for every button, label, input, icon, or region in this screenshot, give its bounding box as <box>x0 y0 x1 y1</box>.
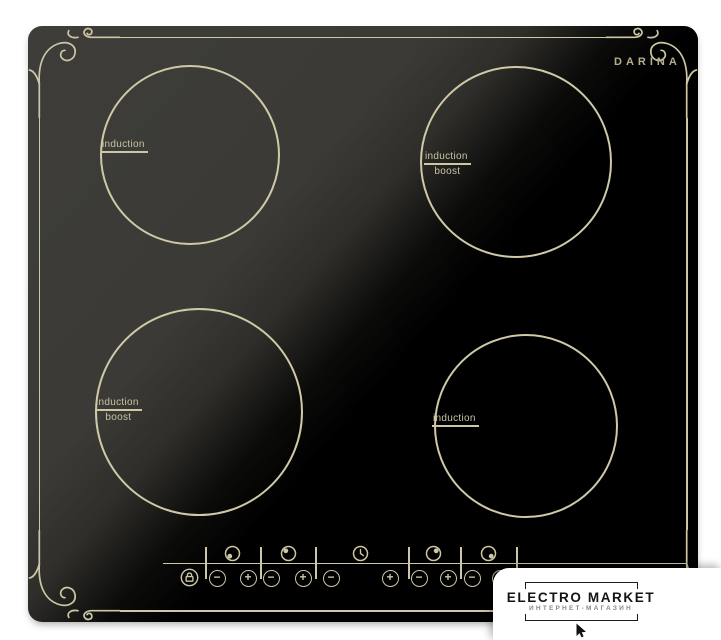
corner-flourish-icon <box>606 26 698 118</box>
watermark-frame-top <box>525 582 638 589</box>
watermark-subtitle: ИНТЕРНЕТ-МАГАЗИН <box>496 605 666 613</box>
cooktop-surface: DARINA induction induction boost inducti… <box>28 26 698 622</box>
zone-type-text: induction <box>101 139 148 153</box>
plus-button-rear-right[interactable]: + <box>440 570 457 587</box>
zone-indicator-icon-front-left <box>224 545 241 562</box>
shop-watermark-content: ELECTRO MARKET ИНТЕРНЕТ-МАГАЗИН <box>496 582 666 621</box>
zone-indicator-icon-front-right <box>480 545 497 562</box>
zone-indicator-icon-rear-left <box>280 545 297 562</box>
watermark-frame-bottom <box>525 614 638 621</box>
zone-label-front-left: induction boost <box>95 397 142 423</box>
zone-type-text: induction <box>432 413 479 427</box>
border-line-top <box>120 37 606 39</box>
control-panel-line <box>163 563 686 565</box>
minus-button-front-left[interactable]: − <box>209 570 226 587</box>
zone-type-text: induction <box>424 151 471 165</box>
corner-flourish-icon <box>28 26 120 118</box>
zone-boost-text: boost <box>95 411 142 423</box>
zone-indicator-icon-rear-right <box>425 545 442 562</box>
timer-clock-icon <box>352 545 369 562</box>
plus-button-rear-left[interactable]: + <box>295 570 312 587</box>
border-line-right <box>686 118 688 530</box>
watermark-title: ELECTRO MARKET <box>496 590 666 605</box>
lock-button[interactable] <box>180 568 199 587</box>
control-panel-divider <box>315 547 317 579</box>
zone-boost-text: boost <box>424 165 471 177</box>
corner-flourish-icon <box>28 530 120 622</box>
mouse-pointer-icon <box>576 623 587 638</box>
plus-button-front-left[interactable]: + <box>240 570 257 587</box>
product-photo: DARINA induction induction boost inducti… <box>0 0 721 640</box>
minus-button-front-right[interactable]: − <box>464 570 481 587</box>
zone-type-text: induction <box>95 397 142 411</box>
zone-label-front-right: induction <box>432 413 479 427</box>
minus-button-rear-right[interactable]: − <box>411 570 428 587</box>
zone-label-rear-left: induction <box>101 139 148 153</box>
zone-label-rear-right: induction boost <box>424 151 471 177</box>
control-panel-divider <box>408 547 410 579</box>
border-line-left <box>39 118 41 530</box>
control-panel-divider <box>260 547 262 579</box>
minus-button-rear-left[interactable]: − <box>263 570 280 587</box>
control-panel-divider <box>460 547 462 579</box>
plus-button-timer[interactable]: + <box>382 570 399 587</box>
shop-watermark: ELECTRO MARKET ИНТЕРНЕТ-МАГАЗИН <box>493 568 721 640</box>
cooking-zone-rear-left <box>100 65 280 245</box>
brand-logo: DARINA <box>614 56 681 68</box>
minus-button-timer[interactable]: − <box>323 570 340 587</box>
control-panel-divider <box>205 547 207 579</box>
